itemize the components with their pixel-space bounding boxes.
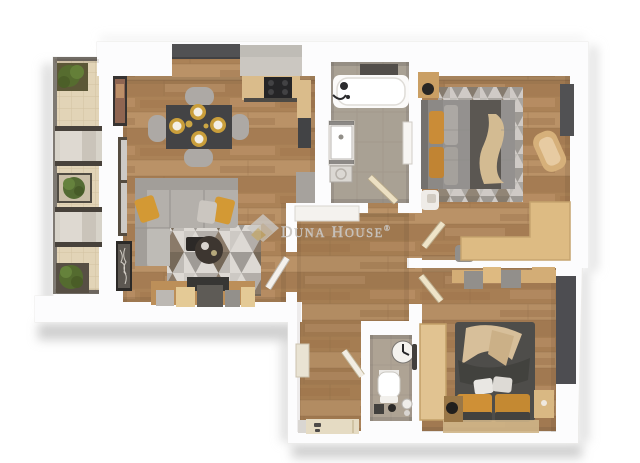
svg-text:DUNA HOUSE®: DUNA HOUSE® [281, 224, 392, 241]
